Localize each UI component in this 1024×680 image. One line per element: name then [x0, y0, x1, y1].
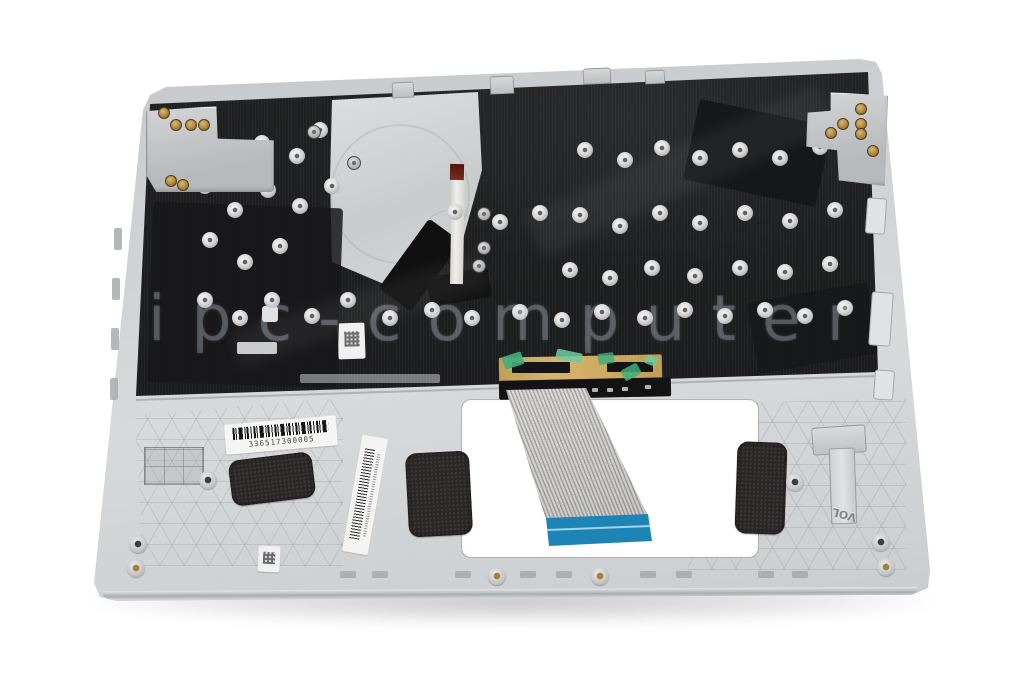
top-edge-tab — [583, 67, 612, 84]
certification-mark — [592, 388, 598, 392]
gold-screw — [855, 103, 867, 115]
certification-mark — [607, 388, 613, 392]
palmrest-screw-boss — [591, 567, 609, 585]
palmrest-screw-boss — [127, 559, 145, 577]
product-photo: 336517300005 VOL ipc-computer — [0, 0, 1024, 680]
top-edge-tab — [392, 82, 415, 99]
green-tape — [597, 352, 614, 365]
bottom-rim-notch — [455, 571, 471, 578]
left-rim-slot — [111, 328, 119, 350]
top-edge-tab — [645, 70, 666, 85]
palmrest-screw-boss — [786, 473, 804, 491]
certification-mark — [622, 387, 628, 391]
bottom-rim-notch — [340, 571, 356, 578]
bottom-rim-notch — [792, 571, 808, 578]
qr-sticker-palmrest — [257, 545, 280, 572]
vent-grid-cutout — [144, 447, 204, 485]
top-edge-tab — [490, 75, 515, 94]
left-rim-slot — [114, 228, 122, 250]
right-rim-port-cutout — [868, 291, 894, 346]
right-rim-port-cutout — [873, 369, 895, 400]
gold-screw — [165, 175, 177, 187]
qr-code-icon — [263, 551, 276, 564]
bottom-rim-notch — [520, 571, 536, 578]
left-rim-slot — [112, 278, 120, 300]
bottom-rim-notch — [372, 571, 388, 578]
foam-pad-center — [405, 450, 473, 537]
gold-screw — [855, 128, 867, 140]
bottom-rim-notch — [676, 571, 692, 578]
palmrest-screw-boss — [199, 471, 217, 489]
gold-screw — [170, 119, 182, 131]
gold-screw — [158, 107, 170, 119]
palmrest-screw-boss — [877, 558, 895, 576]
right-rim-port-cutout — [865, 197, 887, 234]
watermark-text: ipc-computer — [148, 282, 928, 355]
bottom-rim-notch — [758, 571, 774, 578]
vertical-barcode-label — [342, 435, 388, 556]
palmrest-screw-boss — [488, 567, 506, 585]
palmrest-screw-boss — [872, 533, 890, 551]
palmrest-screw-boss — [129, 535, 147, 553]
gold-screw — [867, 145, 879, 157]
gold-screw — [837, 118, 849, 130]
bottom-rim-notch — [640, 571, 656, 578]
foam-pad-right — [734, 441, 787, 535]
gold-screw — [177, 179, 189, 191]
certification-mark — [645, 385, 651, 389]
gold-screw — [825, 127, 837, 139]
left-rim-slot — [110, 378, 118, 400]
bottom-rim-notch — [556, 571, 572, 578]
gold-screw — [198, 119, 210, 131]
gold-screw — [185, 119, 197, 131]
